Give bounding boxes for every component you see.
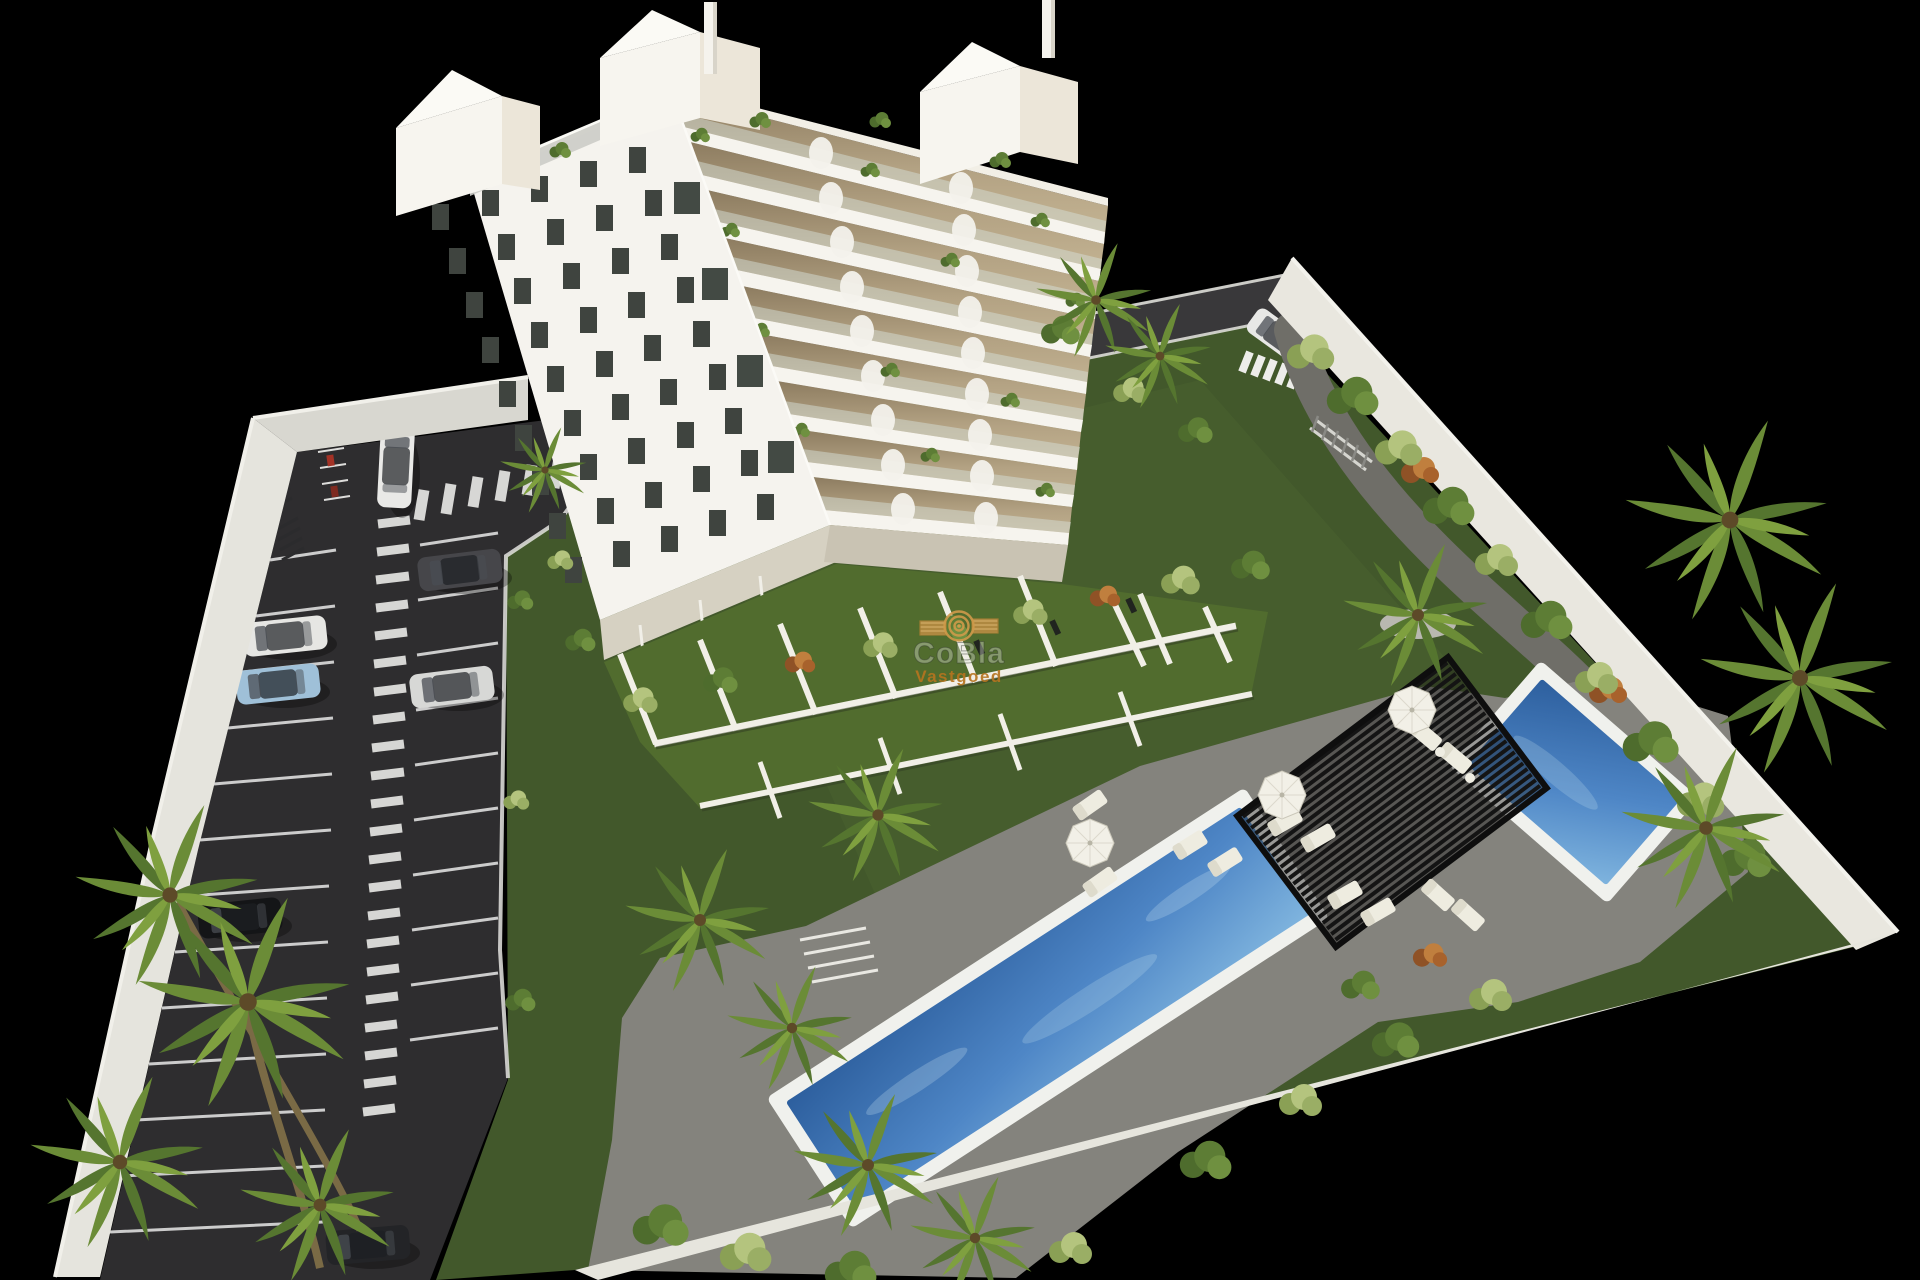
parasol: [1066, 819, 1114, 867]
parasol: [1388, 686, 1436, 734]
property-render-image: CoBla Vastgoed: [0, 0, 1920, 1280]
side-table: [1435, 747, 1445, 757]
watermark: CoBla Vastgoed: [913, 612, 1005, 687]
side-table: [1465, 773, 1475, 783]
watermark-title: CoBla: [913, 637, 1005, 670]
watermark-subtitle: Vastgoed: [915, 667, 1003, 686]
site-render-canvas: CoBla Vastgoed: [0, 0, 1920, 1280]
parasol: [1258, 771, 1306, 819]
